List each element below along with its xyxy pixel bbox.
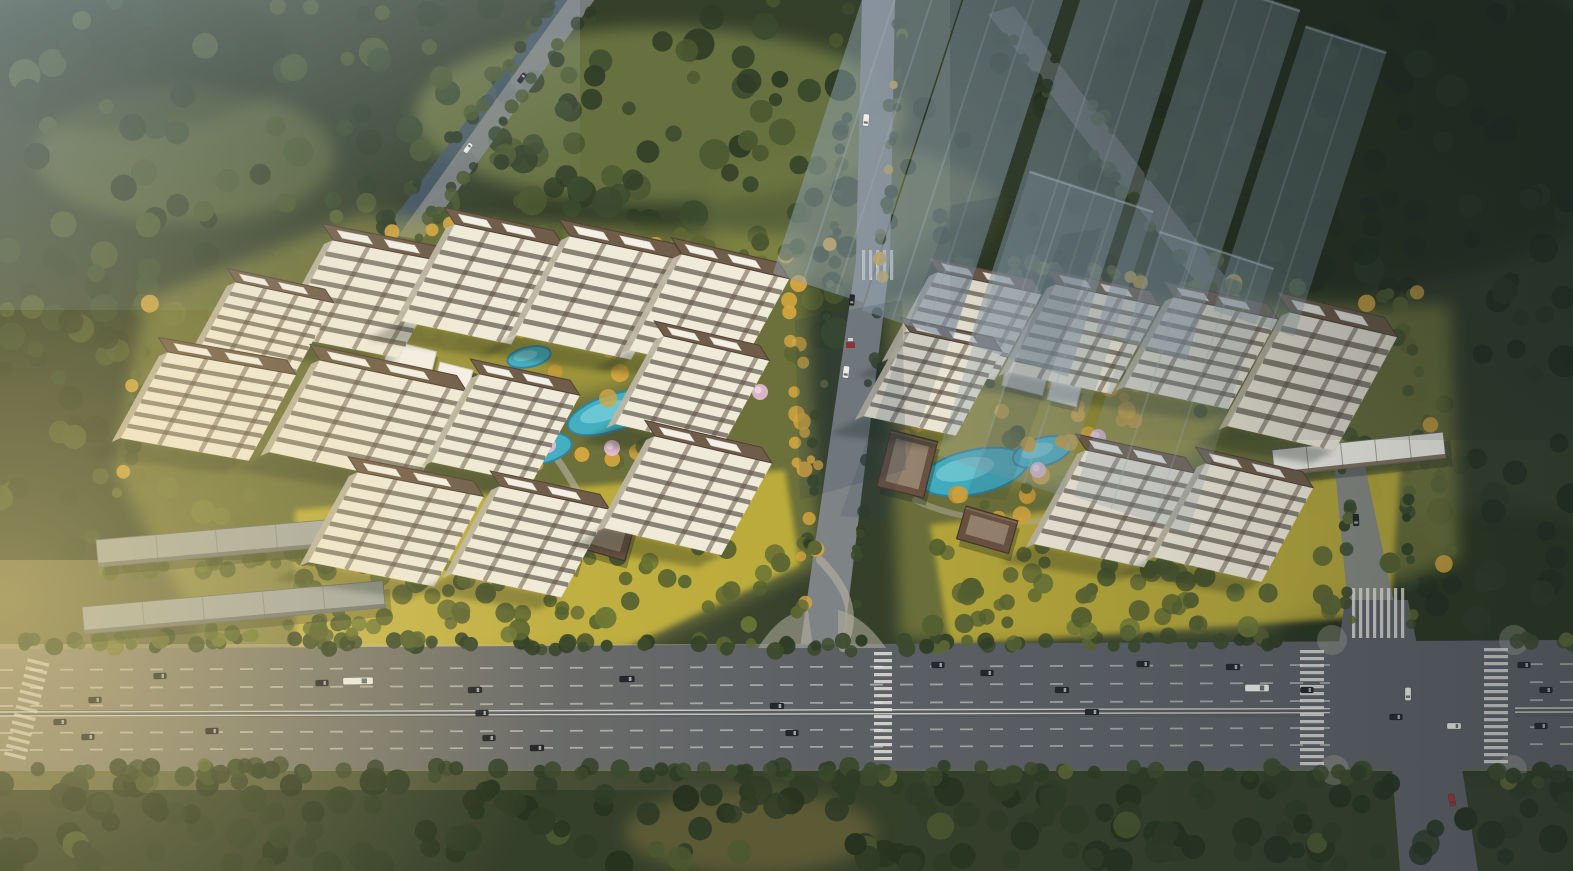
scene-svg [0, 0, 1573, 871]
aerial-rendering [0, 0, 1573, 871]
top-right-vignette [950, 0, 1573, 440]
top-left-haze [0, 0, 580, 310]
